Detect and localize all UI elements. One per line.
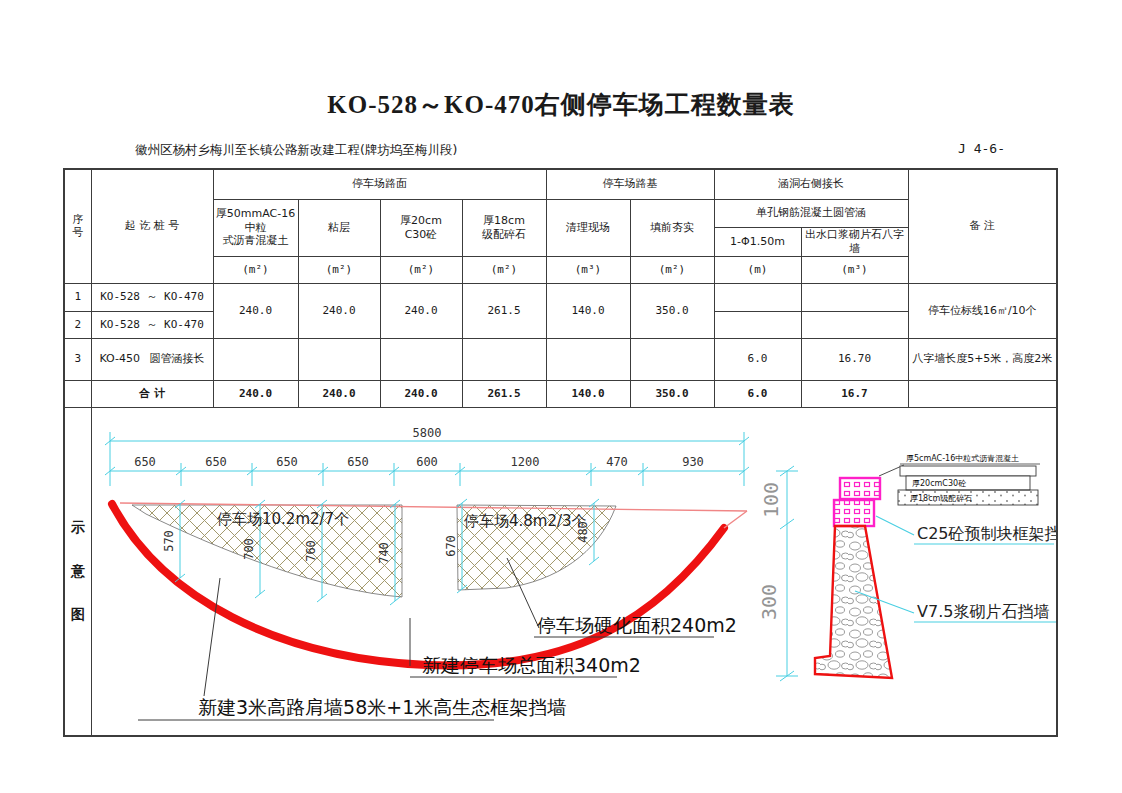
unit-graded-gravel: (m²) [462,256,546,283]
row3-stake-start: KO-450 [100,352,141,366]
val-tack-coat: 240.0 [298,283,380,338]
schematic-drawing-cell: 5800 650 650 650 650 600 1200 470 930 [91,407,1057,736]
dim-seg: 470 [606,455,628,469]
c25-leader-line [876,516,914,535]
section-dim-100: 100 [759,482,783,518]
sheet-number: J 4-6- [958,141,1005,156]
total-label: 合 计 [91,380,213,407]
col-header-wing-wall: 出水口浆砌片石八字墙 [801,227,908,256]
total-c30: 240.0 [380,380,462,407]
dim-seg: 1200 [510,455,539,469]
val-graded-gravel: 261.5 [462,283,546,338]
drawing-sheet: KO-528～KO-470右侧停车场工程数量表 徽州区杨村乡梅川至长镇公路新改建… [0,0,1122,793]
total-compaction: 350.0 [630,380,714,407]
vdim: 740 [377,542,391,564]
masonry-wall-body [815,526,892,678]
dim-seg: 600 [416,455,438,469]
schematic-side-label: 示 意 图 [64,407,91,736]
row3-empty-1 [213,338,298,380]
col-header-stake: 起 讫 桩 号 [91,169,213,283]
header-group-row: 序号 起 讫 桩 号 停车场路面 停车场路基 涵洞右侧接长 备 注 [64,169,1057,199]
parking-area1-label: 停车场10.2m2/7个 [216,510,349,528]
group-header-roadbed: 停车场路基 [546,169,714,199]
total-tack-coat: 240.0 [298,380,380,407]
total-remark-empty [908,380,1057,407]
total-seq-empty [64,380,91,407]
val-ac16: 240.0 [213,283,298,338]
pavement-layer3-label: 厚18cm级配碎石 [910,494,972,503]
parking-area2-label: 停车场4.8m2/3个 [463,512,587,530]
row1-pipe-dia-empty [714,283,801,311]
unit-site-clearing: (m³) [546,256,630,283]
vdim: 700 [242,538,256,560]
total-pipe-dia: 6.0 [714,380,801,407]
dim-seg: 930 [682,455,704,469]
row3-stake: KO-450 圆管涵接长 [91,338,213,380]
quantity-table: 序号 起 讫 桩 号 停车场路面 停车场路基 涵洞右侧接长 备 注 厚50mmA… [63,168,1058,737]
row3-empty-6 [630,338,714,380]
col-header-ac16: 厚50mmAC-16中粒 式沥青混凝土 [213,199,298,256]
unit-pipe-dia: (m) [714,256,801,283]
row1-seq: 1 [64,283,91,311]
pavement-layer1-label: 厚5cmAC-16中粒式沥青混凝土 [906,454,1019,463]
row2-seq: 2 [64,311,91,338]
side-char: 意 [71,563,85,581]
total-ac16: 240.0 [213,380,298,407]
pavement-layer1-rect [900,466,1036,476]
project-subtitle: 徽州区杨村乡梅川至长镇公路新改建工程(牌坊坞至梅川段) [135,142,457,159]
schematic-svg: 5800 650 650 650 650 600 1200 470 930 [92,408,1058,737]
table-row: 1 KO-528 ～ KO-470 240.0 240.0 240.0 261.… [64,283,1057,311]
group-header-culvert: 涵洞右侧接长 [714,169,908,199]
section-dim-300: 300 [757,584,781,620]
sheet-title: KO-528～KO-470右侧停车场工程数量表 [0,88,1122,121]
val-site-clearing: 140.0 [546,283,630,338]
v75-wall-label: V7.5浆砌片石挡墙 [917,602,1049,621]
row2-pipe-dia-empty [714,311,801,338]
sub-header-pipe-culvert: 单孔钢筋混凝土圆管涵 [714,199,908,227]
side-char: 图 [71,606,85,624]
group-header-pavement: 停车场路面 [213,169,546,199]
row2-wing-wall-empty [801,311,908,338]
remark-rows12: 停车位标线16㎡/10个 [908,283,1057,338]
schematic-row: 示 意 图 [64,407,1057,736]
val-c30: 240.0 [380,283,462,338]
remark-row3: 八字墙长度5+5米，高度2米 [908,338,1057,380]
dim-seg: 650 [276,455,298,469]
unit-ac16: (m²) [213,256,298,283]
c25-wall-label: C25砼预制块框架挡墙 [917,524,1058,543]
table-row: 3 KO-450 圆管涵接长 6.0 16.70 八字墙长度5+5米，高度2米 [64,338,1057,380]
dim-total: 5800 [412,426,441,440]
hardened-area-annotation: 停车场硬化面积240m2 [537,614,737,636]
vdim: 570 [162,530,176,552]
row2-stake: KO-528 ～ KO-470 [91,311,213,338]
row1-wing-wall-empty [801,283,908,311]
total-graded-gravel: 261.5 [462,380,546,407]
total-site-clearing: 140.0 [546,380,630,407]
row3-wing-wall: 16.70 [801,338,908,380]
unit-tack-coat: (m²) [298,256,380,283]
row3-empty-4 [462,338,546,380]
dim-seg: 650 [347,455,369,469]
dim-seg: 650 [134,455,156,469]
col-header-site-clearing: 清理现场 [546,199,630,256]
col-header-tack-coat: 粘层 [298,199,380,256]
col-header-seq: 序号 [64,169,91,283]
row3-empty-2 [298,338,380,380]
row1-stake: KO-528 ～ KO-470 [91,283,213,311]
row3-seq: 3 [64,338,91,380]
total-area-annotation: 新建停车场总面积340m2 [422,654,641,676]
col-header-compaction: 填前夯实 [630,199,714,256]
val-compaction: 350.0 [630,283,714,338]
unit-compaction: (m²) [630,256,714,283]
col-header-graded-gravel: 厚18cm 级配碎石 [462,199,546,256]
total-wing-wall: 16.7 [801,380,908,407]
row3-empty-3 [380,338,462,380]
vdim: 670 [444,535,458,557]
unit-c30: (m²) [380,256,462,283]
row3-stake-desc: 圆管涵接长 [150,352,205,366]
col-header-c30: 厚20cm C30砼 [380,199,462,256]
side-char: 示 [71,519,85,537]
col-header-pipe-dia: 1-Φ1.50m [714,227,801,256]
col-header-remark: 备 注 [908,169,1057,283]
row3-pipe-dia: 6.0 [714,338,801,380]
c25-block-upper [840,478,880,499]
curve-end-tie-line [724,511,747,528]
dim-seg: 650 [205,455,227,469]
row3-empty-5 [546,338,630,380]
shoulder-wall-annotation: 新建3米高路肩墙58米+1米高生态框架挡墙 [198,696,566,718]
vdim: 760 [304,540,318,562]
total-row: 合 计 240.0 240.0 240.0 261.5 140.0 350.0 … [64,380,1057,407]
pavement-layer2-label: 厚20cmC30砼 [912,479,966,488]
unit-wing-wall: (m³) [801,256,908,283]
c25-block-lower [834,500,874,526]
